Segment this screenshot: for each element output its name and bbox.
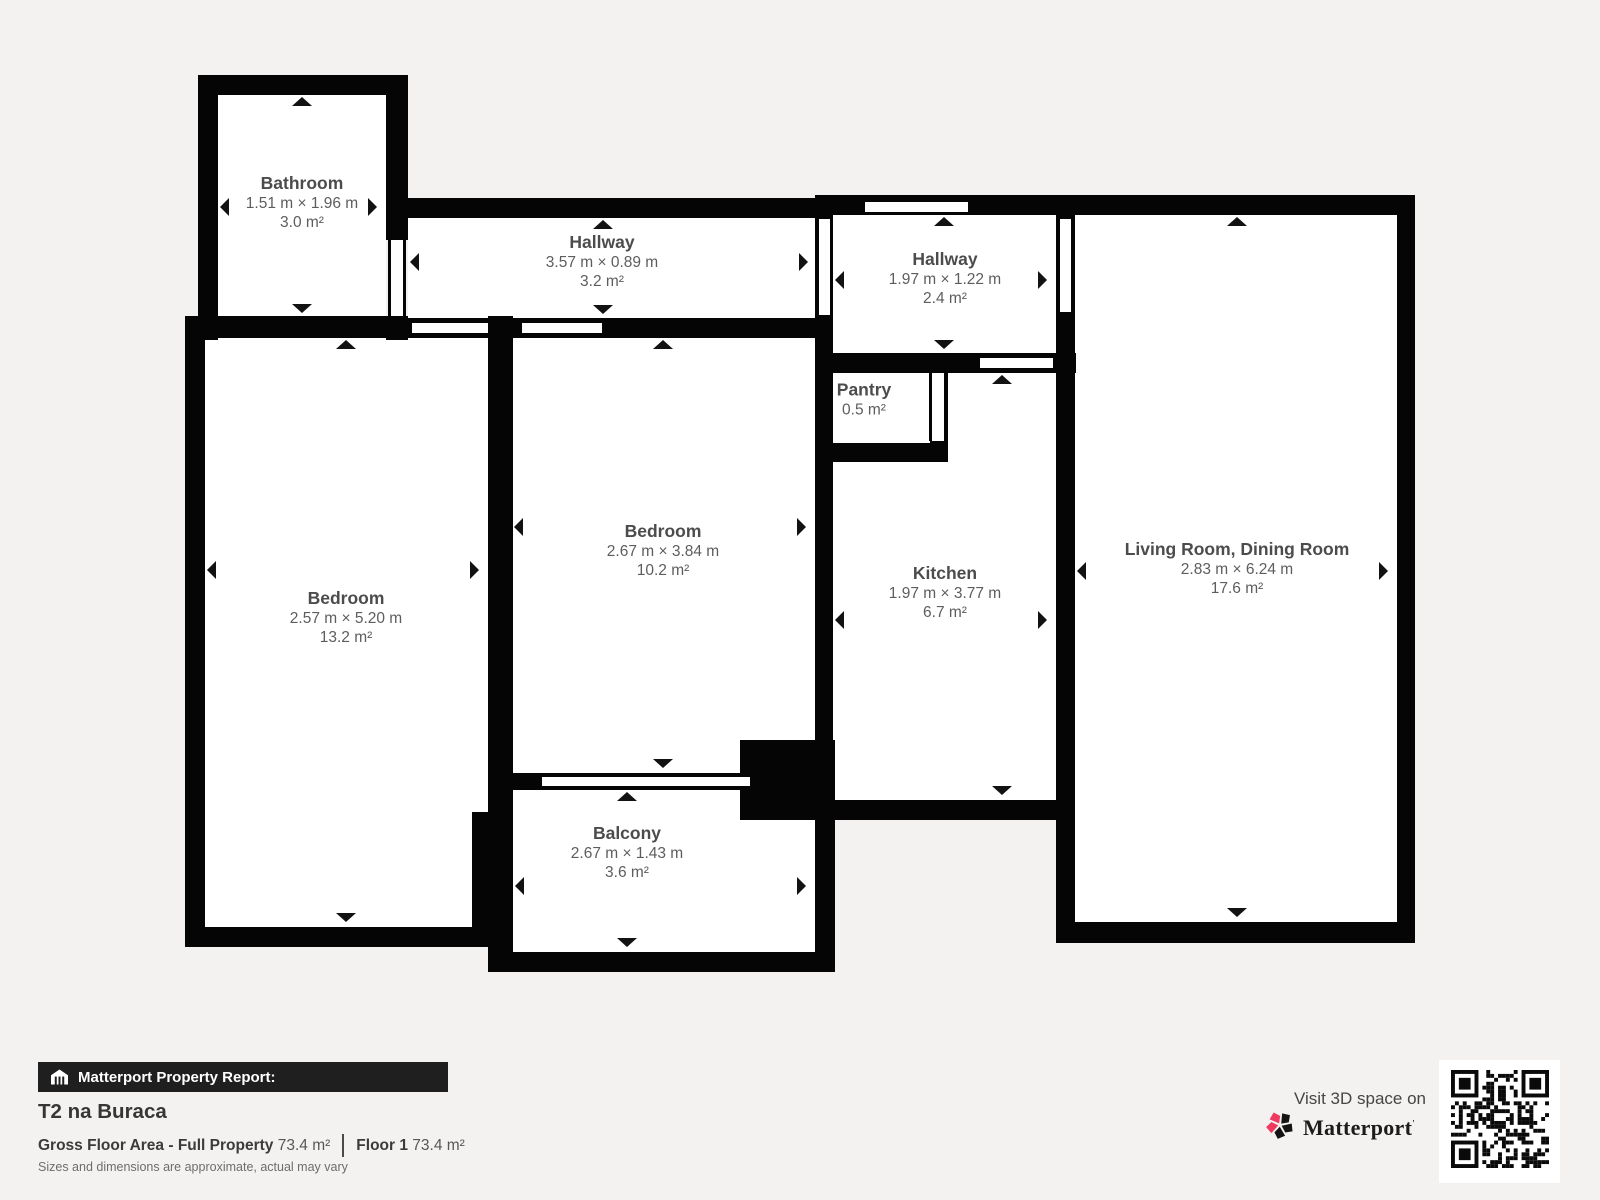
dimension-arrow-right [1038, 271, 1047, 289]
dimension-arrow-up [992, 375, 1012, 384]
wall [185, 316, 408, 338]
dimension-arrow-down [336, 913, 356, 922]
door-opening [816, 219, 833, 315]
house-icon [51, 1069, 68, 1085]
report-header-bar: Matterport Property Report: [38, 1062, 448, 1092]
qr-code-pattern [1451, 1070, 1549, 1173]
dimension-arrow-left [1077, 562, 1086, 580]
door-opening [388, 240, 406, 316]
dimension-arrow-right [368, 198, 377, 216]
room-label-hallway-b: Hallway 1.97 m × 1.22 m 2.4 m² [889, 250, 1001, 309]
matterport-logo: Matterport' [1248, 1110, 1432, 1145]
room-label-balcony: Balcony 2.67 m × 1.43 m 3.6 m² [571, 824, 683, 883]
dimension-arrow-up [617, 792, 637, 801]
entry-door-opening [865, 199, 968, 215]
room-area: 6.7 m² [889, 603, 1001, 623]
report-header-label: Matterport Property Report: [78, 1069, 276, 1086]
dimension-arrow-left [514, 518, 523, 536]
dimension-arrow-right [797, 877, 806, 895]
dimension-arrow-left [410, 253, 419, 271]
wall [198, 75, 408, 95]
floor-area: Floor 1 73.4 m² [356, 1137, 465, 1155]
floor-area-value: 73.4 m² [412, 1137, 465, 1154]
dimension-arrow-up [292, 97, 312, 106]
matterport-wordmark: Matterport' [1303, 1115, 1415, 1141]
matterport-floorplan-page: Bathroom 1.51 m × 1.96 m 3.0 m² Hallway … [0, 0, 1600, 1200]
dimension-arrow-left [207, 561, 216, 579]
wall [185, 927, 495, 947]
wall [386, 75, 408, 240]
wall [1056, 195, 1415, 215]
room-name: Hallway [889, 250, 1001, 270]
room-label-bathroom: Bathroom 1.51 m × 1.96 m 3.0 m² [246, 174, 358, 233]
room-dimensions: 2.67 m × 3.84 m [607, 541, 719, 561]
visit-3d-text: Visit 3D space on [1268, 1089, 1452, 1109]
wall [408, 198, 833, 218]
dimension-arrow-left [515, 877, 524, 895]
divider [342, 1134, 344, 1157]
room-name: Living Room, Dining Room [1125, 540, 1350, 560]
wall [815, 443, 948, 462]
room-name: Bedroom [607, 522, 719, 542]
dimension-arrow-up [593, 220, 613, 229]
dimension-arrow-down [292, 304, 312, 313]
dimension-arrow-down [934, 340, 954, 349]
dimension-arrow-down [617, 938, 637, 947]
gross-floor-area-label: Gross Floor Area - Full Property [38, 1137, 273, 1154]
wall [185, 316, 205, 947]
window-opening [542, 774, 750, 789]
room-dimensions: 2.57 m × 5.20 m [290, 608, 402, 628]
trademark-mark: ' [1412, 1118, 1415, 1128]
floor-label: Floor 1 [356, 1137, 408, 1154]
disclaimer-text: Sizes and dimensions are approximate, ac… [38, 1160, 348, 1174]
room-label-bedroom-a: Bedroom 2.67 m × 3.84 m 10.2 m² [607, 522, 719, 581]
dimension-arrow-right [797, 518, 806, 536]
door-opening [412, 320, 488, 336]
wall [198, 75, 218, 340]
gross-floor-area: Gross Floor Area - Full Property 73.4 m² [38, 1137, 330, 1155]
room-name: Bedroom [290, 589, 402, 609]
area-summary: Gross Floor Area - Full Property 73.4 m²… [38, 1134, 465, 1157]
wall [815, 740, 835, 972]
room-area: 13.2 m² [290, 628, 402, 648]
room-name: Bathroom [246, 174, 358, 194]
property-name: T2 na Buraca [38, 1100, 167, 1124]
room-area: 10.2 m² [607, 561, 719, 581]
door-opening [980, 355, 1053, 371]
qr-code [1439, 1060, 1560, 1183]
wall [490, 952, 835, 972]
brand-text: Matterport [1303, 1115, 1412, 1140]
room-label-pantry: Pantry 0.5 m² [837, 381, 891, 420]
room-dimensions: 1.97 m × 1.22 m [889, 269, 1001, 289]
room-dimensions: 1.97 m × 3.77 m [889, 583, 1001, 603]
room-area: 17.6 m² [1125, 579, 1350, 599]
wall [1397, 195, 1415, 943]
dimension-arrow-up [653, 340, 673, 349]
door-opening [522, 320, 602, 336]
room-name: Kitchen [889, 564, 1001, 584]
gross-floor-area-value: 73.4 m² [278, 1137, 331, 1154]
room-label-bedroom-b: Bedroom 2.57 m × 5.20 m 13.2 m² [290, 589, 402, 648]
dimension-arrow-right [1038, 611, 1047, 629]
room-label-living: Living Room, Dining Room 2.83 m × 6.24 m… [1125, 540, 1350, 599]
room-area: 0.5 m² [837, 400, 891, 420]
dimension-arrow-down [992, 786, 1012, 795]
wall [815, 800, 1058, 820]
room-area: 3.6 m² [571, 863, 683, 883]
room-dimensions: 3.57 m × 0.89 m [546, 252, 658, 272]
room-name: Balcony [571, 824, 683, 844]
room-area: 3.2 m² [546, 272, 658, 292]
dimension-arrow-right [1379, 562, 1388, 580]
dimension-arrow-down [1227, 908, 1247, 917]
room-dimensions: 2.67 m × 1.43 m [571, 843, 683, 863]
dimension-arrow-down [653, 759, 673, 768]
room-area: 2.4 m² [889, 289, 1001, 309]
room-area: 3.0 m² [246, 213, 358, 233]
room-name: Pantry [837, 381, 891, 401]
room-name: Hallway [546, 233, 658, 253]
dimension-arrow-left [835, 271, 844, 289]
wall [1056, 922, 1415, 943]
room-label-hallway-a: Hallway 3.57 m × 0.89 m 3.2 m² [546, 233, 658, 292]
dimension-arrow-up [336, 340, 356, 349]
dimension-arrow-up [934, 217, 954, 226]
dimension-arrow-right [799, 253, 808, 271]
room-dimensions: 1.51 m × 1.96 m [246, 193, 358, 213]
door-opening [929, 373, 947, 441]
dimension-arrow-up [1227, 217, 1247, 226]
dimension-arrow-left [835, 611, 844, 629]
door-opening [1057, 219, 1074, 312]
room-label-kitchen: Kitchen 1.97 m × 3.77 m 6.7 m² [889, 564, 1001, 623]
dimension-arrow-down [593, 305, 613, 314]
matterport-pinwheel-icon [1265, 1110, 1295, 1145]
room-dimensions: 2.83 m × 6.24 m [1125, 559, 1350, 579]
dimension-arrow-right [470, 561, 479, 579]
dimension-arrow-left [220, 198, 229, 216]
